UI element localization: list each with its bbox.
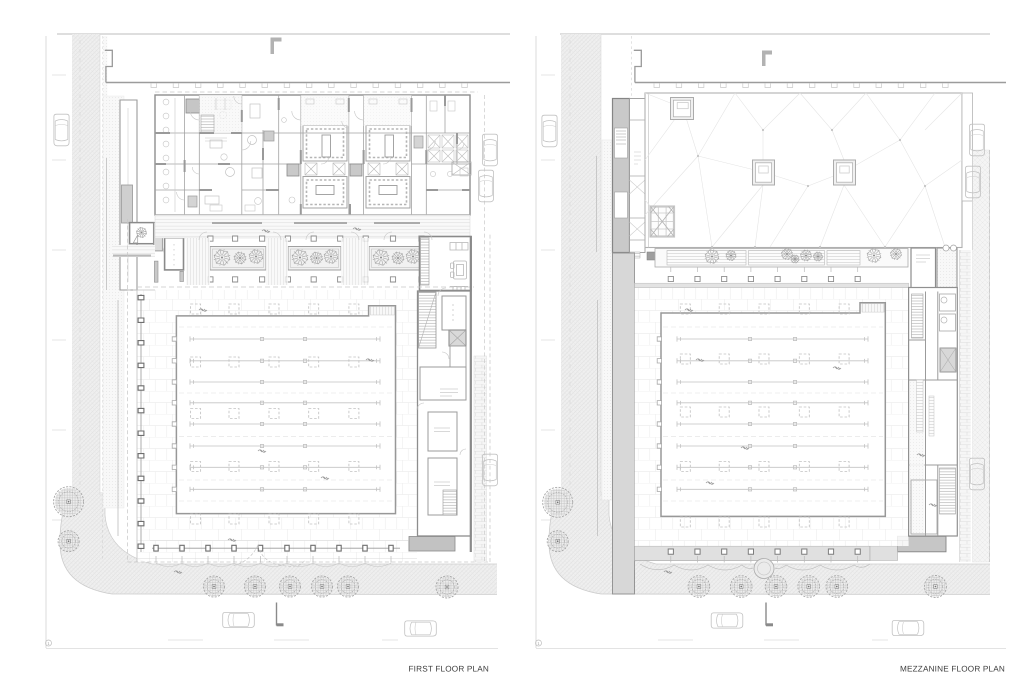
svg-text:FIRST FLOOR PLAN: FIRST FLOOR PLAN xyxy=(408,665,489,674)
svg-text:MEZZANINE FLOOR PLAN: MEZZANINE FLOOR PLAN xyxy=(900,665,1005,674)
